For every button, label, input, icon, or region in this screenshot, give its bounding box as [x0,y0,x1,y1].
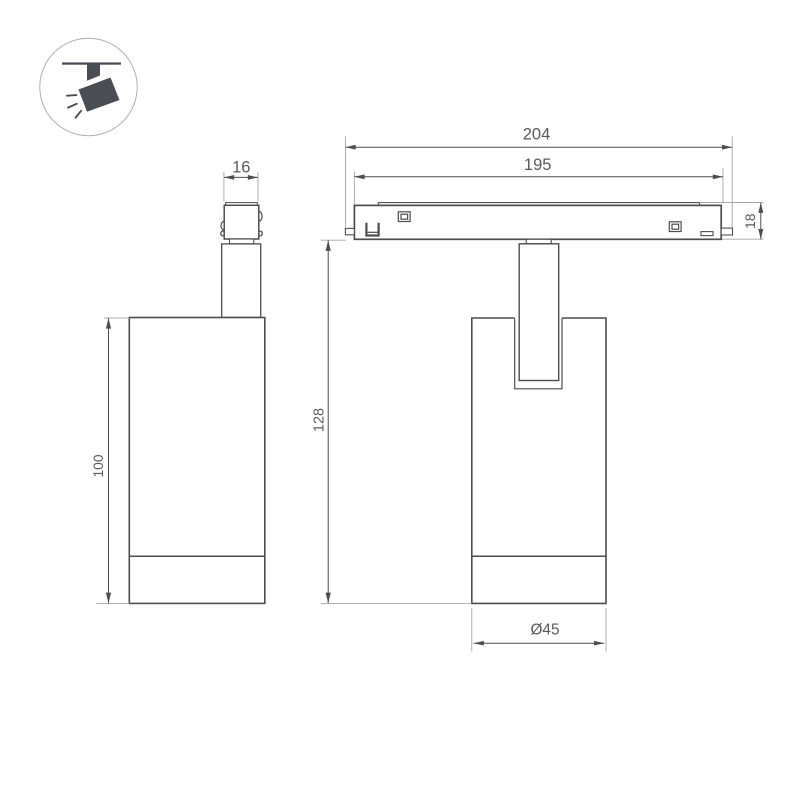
svg-text:Ø45: Ø45 [530,622,559,639]
svg-text:16: 16 [232,158,250,176]
svg-text:100: 100 [91,454,106,477]
svg-text:195: 195 [524,156,552,174]
svg-text:128: 128 [312,408,328,432]
svg-text:18: 18 [742,213,758,229]
svg-text:204: 204 [523,126,551,144]
